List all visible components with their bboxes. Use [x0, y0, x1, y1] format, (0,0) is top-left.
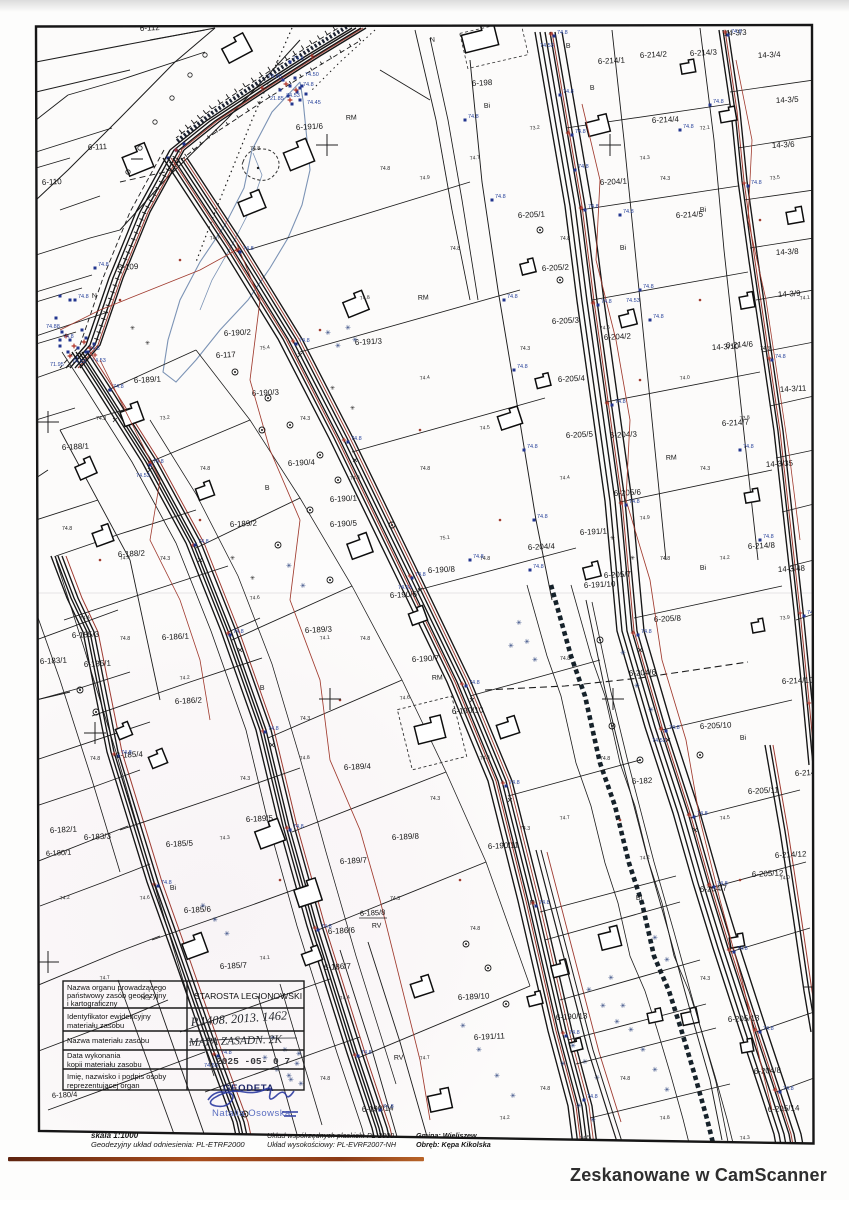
svg-text:✳: ✳ [652, 1066, 658, 1074]
svg-text:74.8: 74.8 [560, 236, 570, 242]
svg-text:14-3/6: 14-3/6 [772, 140, 796, 150]
svg-text:✳: ✳ [652, 934, 658, 942]
svg-text:6-190/8: 6-190/8 [428, 565, 456, 575]
svg-text:RV: RV [394, 1054, 404, 1062]
svg-text:74.8: 74.8 [539, 900, 550, 906]
svg-text:74.8: 74.8 [198, 539, 209, 545]
svg-text:6-185/8: 6-185/8 [360, 908, 386, 918]
svg-text:74.3: 74.3 [660, 176, 670, 182]
svg-text:Data wykonania: Data wykonania [67, 1051, 121, 1060]
svg-text:6-185/3: 6-185/3 [72, 630, 100, 640]
svg-text:Geodezyjny układ odniesienia:: Geodezyjny układ odniesienia: PL-ETRF200… [91, 1140, 245, 1149]
svg-text:74.8: 74.8 [473, 554, 484, 560]
svg-text:6-185/7: 6-185/7 [220, 961, 248, 971]
svg-text:74.8: 74.8 [250, 146, 260, 152]
svg-text:6-214/12: 6-214/12 [775, 849, 808, 860]
svg-text:74.8: 74.8 [89, 346, 100, 352]
svg-text:74.3: 74.3 [240, 776, 250, 782]
svg-text:6-204/2: 6-204/2 [604, 332, 632, 342]
svg-text:74.8: 74.8 [243, 246, 254, 252]
svg-text:B: B [265, 485, 270, 492]
svg-text:74.8: 74.8 [415, 572, 426, 578]
svg-text:74.8: 74.8 [601, 299, 612, 305]
svg-text:✳: ✳ [600, 1002, 606, 1010]
svg-text:6-188/1: 6-188/1 [62, 442, 90, 452]
svg-text:✳: ✳ [294, 1060, 300, 1068]
svg-text:74.8: 74.8 [775, 354, 786, 360]
svg-text:74.8: 74.8 [563, 89, 574, 95]
svg-text:74.8: 74.8 [643, 284, 654, 290]
svg-text:RV: RV [372, 922, 382, 930]
svg-text:skala 1:1000: skala 1:1000 [91, 1131, 139, 1140]
svg-text:74.8: 74.8 [120, 636, 130, 642]
svg-text:6-198: 6-198 [472, 78, 493, 88]
svg-text:74.53: 74.53 [72, 359, 86, 365]
svg-text:6-205/14: 6-205/14 [768, 1103, 801, 1114]
svg-text:74.50: 74.50 [305, 72, 319, 78]
svg-text:6-205/2: 6-205/2 [542, 263, 570, 273]
svg-text:B: B [260, 685, 265, 692]
svg-text:74.45: 74.45 [307, 100, 321, 106]
svg-text:6-186/6: 6-186/6 [328, 926, 356, 936]
svg-text:74.8: 74.8 [641, 629, 652, 635]
svg-text:74.8: 74.8 [575, 129, 586, 135]
svg-text:14-3/5: 14-3/5 [776, 95, 800, 105]
svg-text:6-180/4: 6-180/4 [52, 1090, 78, 1100]
svg-text:6-205/4: 6-205/4 [558, 374, 586, 384]
svg-text:74.8: 74.8 [697, 811, 708, 817]
svg-text:6-183/1: 6-183/1 [40, 656, 68, 666]
svg-text:6-190/10: 6-190/10 [452, 705, 485, 716]
svg-text:74.8: 74.8 [98, 262, 109, 268]
svg-text:B: B [566, 43, 571, 50]
svg-text:RM: RM [432, 674, 443, 682]
svg-text:Bi: Bi [700, 565, 707, 572]
svg-text:✳: ✳ [634, 682, 640, 690]
svg-text:6-190/5: 6-190/5 [330, 519, 358, 529]
svg-text:✳: ✳ [608, 974, 614, 982]
svg-text:Obręb: Kępa Kikolska: Obręb: Kępa Kikolska [416, 1140, 491, 1149]
svg-text:✳: ✳ [664, 956, 670, 964]
svg-text:6-189/4: 6-189/4 [344, 762, 372, 772]
svg-text:Bi: Bi [620, 245, 627, 252]
svg-text:74.8: 74.8 [731, 29, 742, 35]
svg-text:✳: ✳ [664, 1086, 670, 1094]
svg-text:74.8: 74.8 [717, 881, 728, 887]
svg-text:✳: ✳ [200, 902, 206, 910]
svg-text:14-3/9: 14-3/9 [778, 289, 802, 299]
svg-text:74.3: 74.3 [520, 826, 530, 832]
svg-text:Bi: Bi [700, 207, 707, 214]
svg-text:6-185/5: 6-185/5 [166, 839, 194, 849]
svg-text:✳: ✳ [286, 1072, 292, 1080]
svg-text:6-190/11: 6-190/11 [488, 840, 520, 851]
svg-text:✳: ✳ [524, 638, 530, 646]
svg-text:✳: ✳ [250, 575, 255, 582]
svg-text:✳: ✳ [476, 1046, 482, 1054]
svg-text:6-183/3: 6-183/3 [84, 832, 112, 842]
svg-text:21.85: 21.85 [270, 96, 284, 102]
svg-text:74.8: 74.8 [161, 880, 172, 886]
svg-text:74.8: 74.8 [743, 444, 754, 450]
svg-text:6-205/7: 6-205/7 [604, 570, 632, 580]
svg-text:6-186/2: 6-186/2 [175, 696, 203, 706]
svg-text:74.8: 74.8 [320, 1076, 330, 1082]
svg-text:6-205/13: 6-205/13 [728, 1013, 761, 1024]
svg-text:materiału zasobu: materiału zasobu [67, 1021, 124, 1030]
svg-text:74.8: 74.8 [615, 399, 626, 405]
svg-text:74.3: 74.3 [700, 976, 710, 982]
svg-text:6-205/10: 6-205/10 [700, 720, 733, 731]
svg-text:74.8: 74.8 [293, 824, 304, 830]
svg-text:6-189/8: 6-189/8 [392, 832, 420, 842]
svg-text:Bi: Bi [636, 895, 643, 902]
svg-text:74.8: 74.8 [517, 364, 528, 370]
svg-text:6-185/6: 6-185/6 [184, 905, 212, 915]
svg-text:RM: RM [666, 454, 677, 462]
svg-text:✳: ✳ [130, 325, 135, 332]
svg-text:✳: ✳ [576, 1102, 582, 1110]
svg-text:6-204/1: 6-204/1 [600, 177, 628, 187]
svg-text:74.8: 74.8 [540, 1086, 550, 1092]
svg-text:74.8: 74.8 [303, 82, 314, 88]
svg-text:14-3/48: 14-3/48 [778, 564, 806, 574]
svg-text:74.8: 74.8 [507, 294, 518, 300]
svg-text:74.8: 74.8 [653, 314, 664, 320]
svg-text:✳: ✳ [516, 619, 522, 627]
svg-text:6-189/3: 6-189/3 [305, 625, 333, 635]
svg-text:74.8: 74.8 [63, 334, 74, 340]
svg-text:6-190/2: 6-190/2 [224, 328, 252, 338]
svg-text:74.8: 74.8 [763, 1026, 774, 1032]
svg-text:74.53: 74.53 [626, 298, 640, 304]
svg-text:6-182/1: 6-182/1 [50, 825, 78, 835]
svg-text:Bi: Bi [484, 103, 491, 110]
svg-text:6-189/10: 6-189/10 [458, 991, 491, 1002]
svg-text:6-205/3: 6-205/3 [552, 316, 580, 326]
svg-text:✳: ✳ [296, 1050, 302, 1058]
svg-text:74.8: 74.8 [683, 124, 694, 130]
svg-text:✳: ✳ [570, 1042, 576, 1050]
svg-text:74.53: 74.53 [540, 43, 554, 49]
svg-text:6-214/8: 6-214/8 [748, 541, 776, 551]
svg-text:74.8: 74.8 [751, 180, 762, 186]
svg-text:6-180/1: 6-180/1 [46, 848, 72, 858]
svg-text:74.8: 74.8 [450, 246, 460, 252]
svg-text:6-190/7: 6-190/7 [412, 654, 440, 664]
svg-text:Nazwa materiału zasobu: Nazwa materiału zasobu [67, 1036, 149, 1045]
svg-text:6-204/8: 6-204/8 [754, 1066, 782, 1076]
svg-text:74.53: 74.53 [398, 585, 412, 591]
svg-text:6-205/1: 6-205/1 [518, 210, 546, 220]
svg-text:74.8: 74.8 [763, 534, 774, 540]
svg-text:6-204/4: 6-204/4 [528, 542, 556, 552]
svg-text:74.8: 74.8 [468, 114, 479, 120]
svg-text:✳: ✳ [350, 405, 355, 412]
svg-text:B: B [590, 85, 595, 92]
svg-text:✳: ✳ [560, 1060, 566, 1068]
svg-text:2025 -05- 0 7: 2025 -05- 0 7 [216, 1056, 290, 1067]
svg-text:74.8: 74.8 [527, 444, 538, 450]
svg-text:74.3: 74.3 [160, 556, 170, 562]
svg-text:74.3: 74.3 [390, 896, 400, 902]
svg-text:i kartograficzny: i kartograficzny [67, 999, 118, 1008]
svg-text:74.88: 74.88 [268, 74, 282, 80]
svg-text:74.3: 74.3 [300, 716, 310, 722]
svg-text:6-214/4: 6-214/4 [652, 115, 680, 125]
svg-text:RM: RM [418, 294, 429, 302]
svg-text:✳: ✳ [345, 324, 351, 332]
svg-text:6-214/3: 6-214/3 [690, 48, 718, 58]
svg-text:74.8: 74.8 [470, 926, 480, 932]
svg-text:Układ wysokościowy: PL-EVRF200: Układ wysokościowy: PL-EVRF2007-NH [267, 1140, 397, 1149]
svg-text:74.8: 74.8 [113, 384, 124, 390]
svg-text:6-204/3: 6-204/3 [610, 430, 638, 440]
svg-text:74.8: 74.8 [623, 209, 634, 215]
svg-text:6-205/5: 6-205/5 [566, 430, 594, 440]
svg-text:74.8: 74.8 [121, 750, 132, 756]
svg-text:6-186/1: 6-186/1 [162, 632, 190, 642]
svg-text:Zeskanowane w CamScanner: Zeskanowane w CamScanner [570, 1165, 827, 1185]
svg-text:6-205/11: 6-205/11 [748, 785, 780, 796]
svg-text:6-186/7: 6-186/7 [324, 962, 352, 972]
svg-text:74.8: 74.8 [268, 726, 279, 732]
svg-text:74.3: 74.3 [700, 466, 710, 472]
svg-text:74.8: 74.8 [153, 459, 164, 465]
svg-text:74.8: 74.8 [420, 466, 430, 472]
svg-text:✳: ✳ [352, 336, 358, 344]
svg-text:6-205/8: 6-205/8 [654, 614, 682, 624]
svg-text:74.8: 74.8 [569, 1030, 580, 1036]
svg-text:74.8: 74.8 [713, 99, 724, 105]
svg-text:Bi: Bi [740, 735, 747, 742]
svg-text:6-190/4: 6-190/4 [288, 458, 316, 468]
svg-text:14-3/11: 14-3/11 [780, 384, 808, 394]
svg-text:74.8: 74.8 [90, 756, 100, 762]
svg-text:6-191/11: 6-191/11 [474, 1031, 506, 1042]
svg-text:✳: ✳ [494, 1072, 500, 1080]
svg-text:STAROSTA LEGIONOWSKI: STAROSTA LEGIONOWSKI [194, 991, 302, 1001]
svg-text:✳: ✳ [586, 986, 592, 994]
svg-text:6-111: 6-111 [88, 142, 108, 152]
svg-text:✳: ✳ [298, 1080, 304, 1088]
svg-text:6-205/6: 6-205/6 [614, 488, 642, 498]
svg-text:74.8: 74.8 [578, 164, 589, 170]
svg-text:74.8: 74.8 [669, 725, 680, 731]
svg-text:✳: ✳ [330, 385, 335, 392]
svg-text:✳: ✳ [640, 1046, 646, 1054]
svg-text:Imię, nazwisko i podpis osoby: Imię, nazwisko i podpis osoby [67, 1072, 166, 1081]
svg-text:✳: ✳ [620, 1002, 626, 1010]
svg-text:6-189/1: 6-189/1 [134, 375, 162, 385]
svg-text:74.8: 74.8 [560, 656, 570, 662]
svg-text:6-189/2: 6-189/2 [230, 519, 258, 529]
svg-text:74.8: 74.8 [557, 30, 568, 36]
svg-text:74.8: 74.8 [351, 436, 362, 442]
svg-text:74.8: 74.8 [380, 166, 390, 172]
svg-text:✳: ✳ [335, 342, 341, 350]
svg-text:6-109: 6-109 [118, 262, 139, 272]
svg-text:74.8: 74.8 [737, 946, 748, 952]
svg-text:74.3: 74.3 [430, 796, 440, 802]
svg-text:74.8: 74.8 [233, 629, 244, 635]
svg-text:6-189/5: 6-189/5 [246, 814, 274, 824]
svg-text:✳: ✳ [630, 555, 635, 562]
svg-text:6-191/1: 6-191/1 [580, 527, 608, 537]
svg-text:✳: ✳ [620, 649, 626, 657]
svg-text:74.8: 74.8 [200, 466, 210, 472]
svg-text:14-3/35: 14-3/35 [766, 459, 794, 469]
svg-text:74.3: 74.3 [520, 346, 530, 352]
svg-text:✳: ✳ [648, 706, 654, 714]
svg-text:6-214/10: 6-214/10 [782, 675, 815, 686]
svg-text:✳: ✳ [274, 1066, 280, 1074]
svg-text:6-191/6: 6-191/6 [296, 122, 324, 132]
svg-text:✳: ✳ [510, 1092, 516, 1100]
svg-text:kopii materiału zasobu: kopii materiału zasobu [67, 1060, 142, 1069]
svg-text:RM: RM [346, 114, 357, 122]
svg-text:6-189/7: 6-189/7 [340, 856, 368, 866]
svg-text:74.8: 74.8 [299, 338, 310, 344]
svg-text:✳: ✳ [212, 916, 218, 924]
svg-text:6-110: 6-110 [42, 177, 63, 187]
svg-text:74.8: 74.8 [587, 1094, 598, 1100]
svg-text:Identyfikator ewidencyjny: Identyfikator ewidencyjny [67, 1012, 151, 1021]
svg-text:✳: ✳ [614, 1018, 620, 1026]
svg-text:74.53: 74.53 [136, 473, 150, 479]
svg-text:6-214/2: 6-214/2 [640, 50, 668, 60]
svg-text:74.8: 74.8 [78, 294, 89, 300]
svg-text:74.53: 74.53 [286, 93, 300, 99]
svg-text:✳: ✳ [628, 1026, 634, 1034]
svg-text:✳: ✳ [508, 642, 514, 650]
svg-text:✳: ✳ [532, 656, 538, 664]
svg-text:6-191/3: 6-191/3 [355, 337, 383, 347]
svg-text:74.8: 74.8 [620, 1076, 630, 1082]
svg-text:74.53: 74.53 [652, 738, 666, 744]
svg-text:N: N [92, 293, 97, 300]
svg-text:74.8: 74.8 [660, 556, 670, 562]
svg-text:71.95: 71.95 [50, 362, 64, 368]
svg-text:74.8: 74.8 [537, 514, 548, 520]
svg-text:74.8: 74.8 [62, 526, 72, 532]
svg-text:14-3/10: 14-3/10 [712, 342, 740, 352]
svg-text:✳: ✳ [300, 582, 306, 590]
svg-text:6-214/1: 6-214/1 [598, 56, 626, 66]
svg-text:74.8: 74.8 [321, 924, 332, 930]
svg-text:74.8: 74.8 [509, 780, 520, 786]
svg-text:74.8: 74.8 [495, 194, 506, 200]
svg-text:74.8: 74.8 [600, 756, 610, 762]
svg-text:✳: ✳ [610, 535, 615, 542]
svg-text:reprezentującej organ: reprezentującej organ [67, 1081, 140, 1090]
svg-text:74.8: 74.8 [293, 56, 304, 62]
svg-text:74.8: 74.8 [469, 680, 480, 686]
svg-text:6-117: 6-117 [216, 350, 237, 360]
svg-text:6-190/1: 6-190/1 [330, 494, 358, 504]
svg-text:74.8: 74.8 [361, 1050, 372, 1056]
svg-text:74.8: 74.8 [533, 564, 544, 570]
svg-text:74.8: 74.8 [629, 499, 640, 505]
svg-text:Gmina: Wieliszew: Gmina: Wieliszew [416, 1131, 477, 1140]
svg-text:74.8: 74.8 [588, 204, 599, 210]
svg-text:6-182: 6-182 [632, 776, 653, 786]
svg-text:74.3: 74.3 [96, 416, 106, 422]
svg-text:6-190/6: 6-190/6 [390, 590, 418, 600]
svg-text:✳: ✳ [230, 555, 235, 562]
svg-text:14-3/8: 14-3/8 [776, 247, 800, 257]
svg-text:✳: ✳ [325, 329, 331, 337]
svg-text:14-3/4: 14-3/4 [758, 50, 782, 60]
svg-text:6-191/10: 6-191/10 [584, 579, 617, 590]
svg-text:6-204/6: 6-204/6 [629, 668, 657, 678]
svg-text:74.8: 74.8 [783, 1086, 794, 1092]
svg-text:Natalia Osowska: Natalia Osowska [212, 1108, 291, 1119]
svg-text:✳: ✳ [460, 1022, 466, 1030]
svg-text:✳: ✳ [286, 562, 292, 570]
svg-text:74.8: 74.8 [360, 636, 370, 642]
svg-text:N: N [430, 37, 435, 44]
svg-text:74.3: 74.3 [300, 416, 310, 422]
svg-text:✳: ✳ [224, 930, 230, 938]
svg-text:Układ współrzędnych płaskich:: Układ współrzędnych płaskich: PL-2000 [267, 1131, 394, 1140]
svg-text:✳: ✳ [145, 340, 150, 347]
svg-text:74.3: 74.3 [760, 346, 770, 352]
